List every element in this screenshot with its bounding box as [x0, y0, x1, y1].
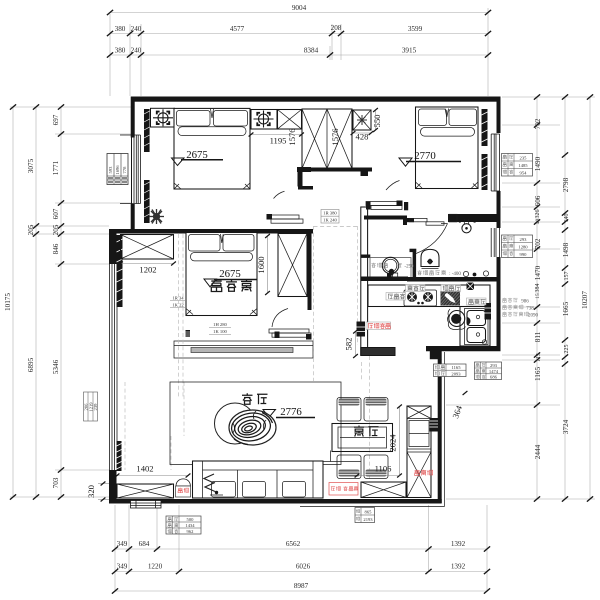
svg-text:702: 702 — [534, 238, 542, 249]
svg-text:6895: 6895 — [27, 357, 35, 372]
svg-text:205: 205 — [27, 224, 35, 235]
svg-text:703: 703 — [52, 477, 60, 488]
svg-text:1195: 1195 — [270, 136, 287, 146]
svg-text:1K 240: 1K 240 — [323, 218, 337, 223]
svg-text:2090: 2090 — [528, 314, 539, 319]
svg-text:1474: 1474 — [489, 369, 499, 374]
svg-text:593: 593 — [108, 166, 113, 174]
svg-text:684: 684 — [139, 540, 150, 548]
svg-text:-290: -290 — [404, 265, 414, 270]
svg-text:2444: 2444 — [534, 444, 542, 459]
svg-text:738: 738 — [526, 307, 534, 312]
svg-text:1498: 1498 — [562, 242, 570, 257]
svg-text:962: 962 — [187, 529, 195, 534]
svg-text:9004: 9004 — [292, 4, 307, 12]
svg-text:500: 500 — [187, 517, 195, 522]
svg-text:1280: 1280 — [518, 245, 528, 250]
svg-text:380: 380 — [115, 47, 126, 55]
svg-text:10175: 10175 — [4, 293, 12, 311]
svg-text:550: 550 — [372, 115, 382, 128]
svg-text:140: 140 — [564, 214, 570, 223]
svg-text:8384: 8384 — [304, 47, 319, 55]
svg-text:40: 40 — [535, 219, 541, 225]
svg-text:1576: 1576 — [330, 128, 340, 146]
svg-text:1106: 1106 — [375, 464, 393, 474]
svg-text:349: 349 — [117, 563, 128, 571]
svg-text:778: 778 — [122, 166, 127, 174]
svg-text:157: 157 — [564, 272, 570, 281]
svg-text:582: 582 — [344, 338, 354, 351]
svg-text:5346: 5346 — [52, 359, 60, 374]
svg-text:208: 208 — [331, 24, 342, 32]
svg-text:380: 380 — [115, 25, 126, 33]
svg-text:349: 349 — [117, 540, 128, 548]
svg-text:3599: 3599 — [408, 25, 423, 33]
svg-text:1485: 1485 — [518, 163, 528, 168]
svg-text:811: 811 — [534, 331, 542, 342]
svg-text:1470: 1470 — [534, 265, 542, 280]
svg-text:1R 380: 1R 380 — [323, 211, 337, 216]
svg-text:990: 990 — [520, 252, 528, 257]
svg-text:8987: 8987 — [294, 582, 309, 590]
svg-text:205: 205 — [52, 224, 60, 235]
svg-text:384: 384 — [535, 284, 541, 293]
svg-text:239: 239 — [93, 403, 98, 411]
svg-text:2776: 2776 — [280, 406, 302, 418]
svg-text:1771: 1771 — [52, 160, 60, 175]
svg-text:1402: 1402 — [136, 464, 153, 474]
svg-text:1490: 1490 — [534, 156, 542, 171]
svg-text:1392: 1392 — [451, 563, 466, 571]
svg-text:6026: 6026 — [296, 563, 311, 571]
svg-text:702: 702 — [534, 118, 542, 129]
svg-text:320: 320 — [86, 485, 96, 498]
svg-text:1165: 1165 — [534, 367, 542, 382]
svg-text:326: 326 — [535, 210, 541, 219]
svg-text:240: 240 — [131, 47, 142, 55]
svg-text:240: 240 — [131, 25, 142, 33]
svg-text:1696: 1696 — [115, 165, 120, 175]
svg-text:2024: 2024 — [388, 434, 398, 452]
svg-text:2093: 2093 — [451, 371, 461, 376]
svg-text:2798: 2798 — [562, 177, 570, 192]
svg-text:: -400: : -400 — [449, 272, 461, 277]
svg-text:3915: 3915 — [402, 47, 417, 55]
svg-text:3724: 3724 — [562, 419, 570, 434]
svg-text:954: 954 — [520, 171, 528, 176]
svg-text:115: 115 — [536, 353, 542, 362]
svg-text:1392: 1392 — [451, 540, 466, 548]
svg-text:6562: 6562 — [286, 540, 301, 548]
svg-text:1665: 1665 — [562, 301, 570, 316]
svg-text:293: 293 — [490, 363, 498, 368]
svg-text:2675: 2675 — [219, 268, 241, 280]
svg-text:1220: 1220 — [148, 563, 163, 571]
svg-text:10207: 10207 — [581, 291, 589, 309]
svg-text:986: 986 — [521, 300, 529, 305]
svg-text:846: 846 — [52, 243, 60, 254]
svg-text:3075: 3075 — [27, 158, 35, 173]
svg-text:2770: 2770 — [414, 150, 436, 162]
svg-text:4577: 4577 — [230, 25, 245, 33]
svg-text:607: 607 — [52, 208, 60, 219]
svg-text:1576: 1576 — [287, 128, 297, 146]
svg-text:1165: 1165 — [451, 365, 461, 370]
svg-text:1600: 1600 — [256, 256, 266, 273]
svg-text:606: 606 — [534, 195, 542, 206]
svg-text:865: 865 — [365, 510, 373, 515]
svg-text:235: 235 — [520, 156, 528, 161]
svg-text:15: 15 — [535, 293, 541, 299]
svg-text:686: 686 — [490, 375, 498, 380]
svg-text:1202: 1202 — [139, 265, 156, 275]
svg-text:293: 293 — [520, 237, 528, 242]
svg-text:2193: 2193 — [363, 517, 373, 522]
svg-text:1H 280: 1H 280 — [213, 322, 227, 327]
svg-text:1K 100: 1K 100 — [213, 329, 227, 334]
svg-text:225: 225 — [564, 345, 570, 354]
svg-text:697: 697 — [52, 114, 60, 125]
svg-text:1434: 1434 — [185, 523, 195, 528]
